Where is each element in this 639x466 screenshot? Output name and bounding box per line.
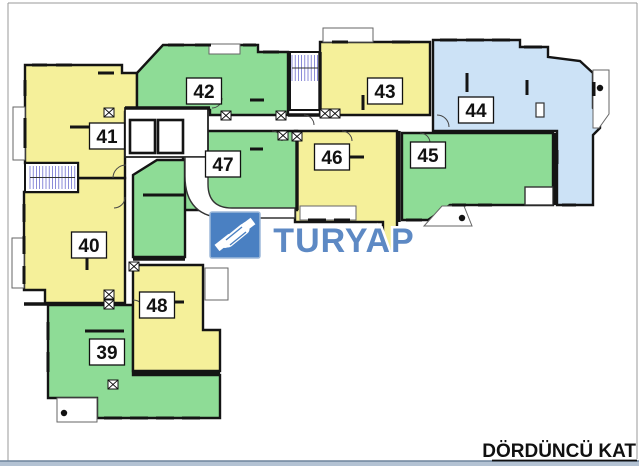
duct-44 — [536, 103, 544, 117]
balcony-40 — [12, 238, 24, 288]
svg-text:39: 39 — [96, 343, 117, 364]
room-label-47: 47 — [206, 151, 241, 177]
room-label-48: 48 — [140, 292, 175, 318]
turyap-logo — [210, 212, 260, 258]
svg-text:48: 48 — [146, 296, 167, 317]
svg-text:44: 44 — [465, 101, 487, 122]
shaft-box-icon — [330, 109, 340, 118]
terrace-45 — [525, 187, 553, 205]
column-dot — [459, 215, 465, 221]
room-label-42: 42 — [187, 78, 222, 104]
balcony-42 — [209, 44, 240, 54]
stair-hatch-icon — [30, 166, 75, 189]
room-label-39: 39 — [90, 339, 125, 365]
room-label-43: 43 — [368, 78, 403, 104]
shaft-box-icon — [221, 111, 231, 120]
svg-text:42: 42 — [193, 82, 214, 103]
balcony-44 — [593, 70, 609, 128]
shaft-box-icon — [104, 108, 114, 117]
svg-text:43: 43 — [374, 82, 395, 103]
balcony-43 — [323, 28, 373, 42]
shaft-box-icon — [104, 290, 114, 299]
column-dot — [61, 410, 67, 416]
room-label-41: 41 — [90, 123, 125, 149]
shaft-box-icon — [129, 262, 139, 271]
svg-text:41: 41 — [96, 127, 118, 148]
shaft-box-icon — [108, 380, 118, 389]
svg-text:45: 45 — [417, 146, 439, 167]
shaft-box-icon — [320, 109, 330, 118]
shaft-box-icon — [276, 111, 286, 120]
room-41 — [25, 65, 137, 178]
elevator-shaft — [130, 120, 155, 153]
shaft-box-icon — [278, 131, 288, 140]
balcony-48 — [205, 268, 228, 300]
room-label-46: 46 — [315, 144, 350, 170]
floor-plan-page: 39404142434445464748 TURYAP DÖRDÜNCÜ KAT — [0, 0, 639, 466]
svg-text:40: 40 — [78, 236, 99, 257]
svg-text:47: 47 — [212, 155, 233, 176]
column-dot — [597, 85, 603, 91]
room-label-40: 40 — [72, 232, 107, 258]
floor-plan-svg: 39404142434445464748 TURYAP DÖRDÜNCÜ KAT — [0, 0, 639, 466]
shaft-box-icon — [292, 132, 302, 141]
turyap-logo-wordmark: TURYAP — [273, 222, 414, 260]
svg-text:46: 46 — [321, 148, 342, 169]
balcony-46 — [300, 206, 356, 220]
room-47b — [133, 160, 185, 257]
room-label-45: 45 — [411, 142, 446, 168]
elevator-shaft — [158, 120, 183, 153]
balcony-41 — [13, 107, 25, 160]
floor-title: DÖRDÜNCÜ KAT — [482, 441, 636, 462]
shaft-box-icon — [104, 300, 114, 309]
room-label-44: 44 — [459, 97, 494, 123]
